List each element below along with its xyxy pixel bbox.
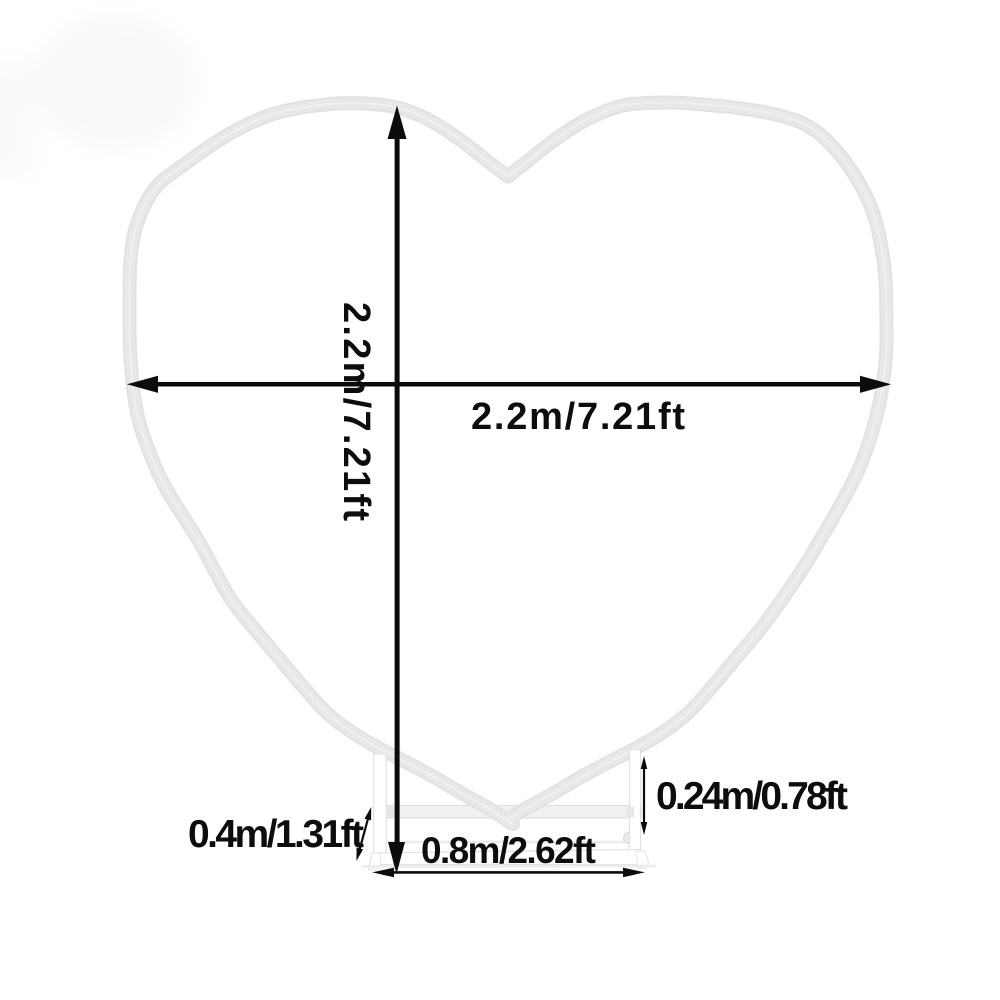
svg-text:2.2m/7.21ft: 2.2m/7.21ft (471, 396, 685, 438)
svg-text:0.8m/2.62ft: 0.8m/2.62ft (421, 830, 596, 871)
svg-text:0.4m/1.31ft: 0.4m/1.31ft (188, 813, 364, 856)
svg-text:0.24m/0.78ft: 0.24m/0.78ft (656, 775, 848, 818)
svg-text:2.2m/7.21ft: 2.2m/7.21ft (335, 302, 377, 521)
